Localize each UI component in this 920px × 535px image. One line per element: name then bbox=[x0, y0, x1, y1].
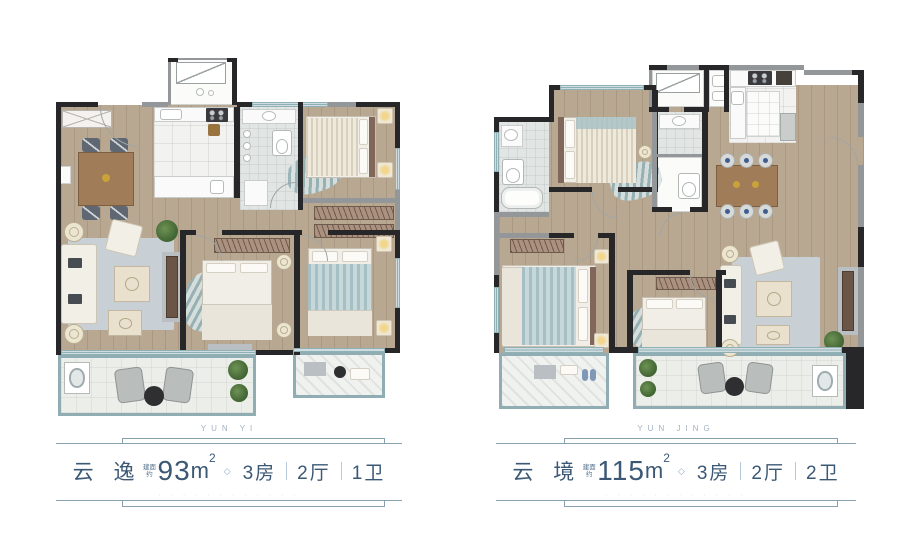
unit-label-yunjing: YUN JING 云 境 建面约 115 m2 ◇ 3房 2厅 2卫 · · ·… bbox=[496, 424, 856, 506]
pillow bbox=[565, 151, 575, 179]
side-table bbox=[64, 324, 84, 344]
wall bbox=[690, 207, 708, 212]
wall bbox=[729, 65, 804, 70]
wall bbox=[858, 227, 864, 267]
unit-name: 云 逸 bbox=[73, 456, 142, 486]
duvet-fold bbox=[202, 304, 272, 340]
wardrobe bbox=[314, 206, 394, 220]
slipper bbox=[582, 369, 588, 381]
utility-fixture bbox=[196, 88, 204, 96]
wall bbox=[667, 65, 699, 70]
dining-chair bbox=[739, 204, 754, 219]
stove bbox=[748, 71, 772, 85]
kitchen-sink bbox=[731, 91, 744, 105]
wall bbox=[549, 90, 554, 122]
balcony-chair bbox=[114, 366, 146, 404]
nightstand-lamp bbox=[377, 108, 393, 124]
wall bbox=[328, 102, 356, 107]
unit-label-yunyi: YUN YI 云 逸 建面约 93 m2 ◇ 3房 2厅 1卫 · · · · … bbox=[56, 424, 402, 506]
wall bbox=[168, 58, 178, 62]
dining-chair bbox=[758, 153, 773, 168]
nightstand-lamp bbox=[594, 249, 609, 264]
dining-chair bbox=[82, 206, 100, 220]
wall bbox=[704, 70, 709, 112]
side-table bbox=[276, 254, 292, 270]
sofa-throw bbox=[68, 258, 82, 268]
separator bbox=[795, 462, 796, 480]
bench bbox=[304, 362, 326, 376]
bench bbox=[756, 325, 790, 345]
fridge bbox=[780, 113, 796, 141]
fine-print: · · · · · · · · · · · · bbox=[56, 492, 402, 499]
bath-shelf bbox=[243, 154, 251, 162]
decor-line-bottom bbox=[56, 499, 402, 506]
floorplan-yunyi bbox=[56, 58, 402, 418]
sofa bbox=[61, 244, 97, 324]
dining-chair bbox=[720, 153, 735, 168]
wall bbox=[168, 58, 171, 105]
pillow bbox=[206, 263, 236, 273]
bathtub bbox=[501, 187, 543, 209]
spec-baths: 2卫 bbox=[806, 458, 840, 485]
wall bbox=[609, 347, 633, 353]
kitchen-sink bbox=[210, 180, 224, 194]
wall bbox=[494, 117, 499, 132]
bath-shelf bbox=[243, 130, 251, 138]
headboard bbox=[558, 117, 564, 183]
diamond-icon: ◇ bbox=[678, 466, 685, 477]
wall bbox=[142, 102, 168, 107]
dining-chair bbox=[110, 206, 128, 220]
spec-halls: 2厅 bbox=[297, 458, 331, 485]
separator bbox=[286, 462, 287, 480]
spec-halls: 2厅 bbox=[751, 458, 785, 485]
bath-shelf bbox=[243, 142, 251, 150]
plant bbox=[156, 220, 178, 242]
pillow bbox=[359, 119, 368, 145]
wall bbox=[494, 172, 499, 217]
wall bbox=[494, 212, 549, 217]
unit-pinyin: YUN YI bbox=[56, 424, 402, 433]
floorplan-yunjing bbox=[494, 57, 872, 421]
wall bbox=[846, 353, 864, 409]
utility-fixture bbox=[208, 90, 214, 96]
wall bbox=[657, 154, 702, 157]
unit-pinyin: YUN JING bbox=[496, 424, 856, 433]
wall bbox=[494, 275, 499, 287]
area-unit: m2 bbox=[191, 458, 216, 484]
toilet bbox=[502, 159, 524, 185]
coffee-table bbox=[114, 266, 150, 302]
washing-machine bbox=[812, 365, 838, 397]
wall bbox=[222, 230, 298, 235]
sofa bbox=[720, 265, 742, 345]
plant bbox=[228, 360, 248, 380]
wall bbox=[652, 112, 657, 212]
window bbox=[252, 102, 328, 107]
bath-sink bbox=[672, 116, 686, 126]
wall bbox=[180, 235, 186, 355]
nightstand-lamp bbox=[594, 333, 609, 348]
sofa-throw bbox=[724, 315, 736, 324]
window bbox=[494, 287, 499, 333]
spec-baths: 1卫 bbox=[352, 458, 386, 485]
wall bbox=[232, 58, 237, 105]
pillow bbox=[342, 251, 368, 262]
bench bbox=[534, 365, 556, 379]
area-value: 115 bbox=[597, 455, 645, 487]
bath-sink bbox=[262, 111, 276, 121]
pillow bbox=[240, 263, 268, 273]
diamond-icon: ◇ bbox=[224, 466, 231, 477]
pouf bbox=[638, 145, 652, 159]
window bbox=[638, 347, 842, 353]
balcony-table bbox=[144, 386, 164, 406]
window bbox=[494, 132, 499, 172]
superscript-2: 2 bbox=[209, 451, 216, 465]
area-note: 建面约 bbox=[143, 464, 157, 478]
wall bbox=[627, 270, 690, 275]
wall bbox=[609, 238, 615, 353]
balcony-table bbox=[725, 377, 744, 396]
appliance bbox=[776, 71, 792, 85]
plant bbox=[640, 381, 656, 397]
wall bbox=[234, 107, 240, 198]
towel bbox=[560, 365, 578, 375]
wall bbox=[652, 207, 672, 212]
separator bbox=[740, 462, 741, 480]
window bbox=[293, 348, 385, 352]
area-value: 93 bbox=[158, 455, 191, 487]
wall bbox=[858, 103, 864, 137]
balcony-chair bbox=[744, 361, 774, 394]
table-decor bbox=[733, 181, 740, 188]
window bbox=[560, 85, 644, 90]
wall bbox=[395, 102, 400, 148]
exterior bbox=[494, 85, 549, 117]
pillow bbox=[646, 299, 673, 309]
balcony-chair bbox=[697, 361, 727, 394]
flower-pot bbox=[334, 366, 346, 378]
wall bbox=[494, 217, 499, 275]
pillow bbox=[578, 269, 588, 303]
duvet bbox=[308, 264, 372, 310]
side-table bbox=[276, 322, 292, 338]
unit-name: 云 境 bbox=[512, 456, 581, 486]
nightstand-lamp bbox=[377, 162, 393, 178]
wall bbox=[294, 235, 300, 355]
decor-line-top bbox=[496, 438, 856, 445]
white-fold bbox=[502, 267, 522, 345]
decor-line-bottom bbox=[496, 499, 856, 506]
wall bbox=[494, 333, 499, 353]
wardrobe bbox=[510, 239, 564, 253]
wall bbox=[702, 112, 708, 212]
toilet bbox=[272, 130, 292, 156]
ottoman bbox=[108, 310, 142, 336]
floorplan-poster: YUN YI 云 逸 建面约 93 m2 ◇ 3房 2厅 1卫 · · · · … bbox=[0, 0, 920, 535]
wall bbox=[804, 70, 858, 75]
toilet bbox=[678, 173, 700, 199]
sofa-throw bbox=[68, 294, 82, 304]
wall bbox=[328, 230, 400, 235]
wall bbox=[356, 102, 400, 107]
plant bbox=[639, 359, 657, 377]
table-decor bbox=[102, 174, 110, 182]
sofa-throw bbox=[724, 279, 736, 288]
wall bbox=[633, 347, 638, 353]
wall bbox=[298, 102, 303, 210]
washing-machine bbox=[64, 362, 90, 394]
dining-chair bbox=[720, 204, 735, 219]
dining-chair bbox=[82, 138, 100, 152]
wall bbox=[227, 58, 237, 62]
tv-console bbox=[842, 271, 854, 331]
wall bbox=[716, 275, 722, 353]
nightstand-lamp bbox=[376, 320, 392, 336]
shower bbox=[244, 180, 268, 206]
wall bbox=[395, 308, 400, 353]
wall bbox=[256, 350, 293, 355]
wall bbox=[858, 165, 864, 227]
table-decor bbox=[752, 181, 759, 188]
window bbox=[504, 347, 604, 353]
teal-throw bbox=[576, 117, 636, 129]
spec-rooms: 3房 bbox=[697, 458, 731, 485]
wall bbox=[385, 348, 400, 353]
wall bbox=[56, 102, 98, 107]
unit-title: 云 境 建面约 115 m2 ◇ 3房 2厅 2卫 bbox=[496, 454, 856, 488]
pillow bbox=[578, 307, 588, 341]
pillow bbox=[676, 299, 703, 309]
wall bbox=[56, 102, 61, 355]
wall bbox=[303, 198, 395, 203]
duvet bbox=[306, 118, 358, 176]
coffee-table bbox=[756, 281, 792, 317]
decor-line-top bbox=[56, 438, 402, 445]
unit-title: 云 逸 建面约 93 m2 ◇ 3房 2厅 1卫 bbox=[56, 454, 402, 488]
dining-chair bbox=[758, 204, 773, 219]
balcony-small bbox=[499, 353, 609, 409]
kitchen-island bbox=[746, 91, 780, 137]
fine-print: · · · · · · · · · · · · bbox=[496, 492, 856, 499]
area-note: 建面约 bbox=[582, 464, 596, 478]
duvet-fold bbox=[308, 310, 372, 336]
wall bbox=[858, 267, 864, 357]
spec-rooms: 3房 bbox=[243, 458, 277, 485]
dining-table bbox=[716, 165, 778, 207]
nightstand-lamp bbox=[376, 236, 392, 252]
window bbox=[61, 350, 256, 355]
wall bbox=[549, 187, 592, 192]
wall bbox=[499, 233, 549, 238]
kitchen-sink bbox=[160, 109, 182, 120]
pillow bbox=[565, 120, 575, 148]
balcony-chair bbox=[162, 366, 194, 404]
side-table bbox=[64, 222, 84, 242]
towel bbox=[350, 368, 370, 380]
stove bbox=[206, 108, 228, 122]
drying-rack bbox=[176, 62, 226, 84]
dining-chair bbox=[739, 153, 754, 168]
wall bbox=[549, 233, 574, 238]
headboard bbox=[369, 117, 375, 177]
window bbox=[395, 258, 400, 308]
area-unit: m2 bbox=[645, 458, 670, 484]
grocery-bag bbox=[208, 124, 220, 136]
wall bbox=[395, 190, 400, 230]
plant bbox=[230, 384, 248, 402]
wardrobe bbox=[214, 238, 290, 253]
wall bbox=[494, 117, 549, 122]
superscript-2: 2 bbox=[663, 451, 670, 465]
wall bbox=[627, 275, 633, 353]
wall bbox=[858, 70, 864, 103]
pillow bbox=[359, 148, 368, 174]
side-table bbox=[721, 245, 739, 263]
wall bbox=[724, 70, 729, 112]
drying-rack bbox=[656, 73, 700, 93]
separator bbox=[341, 462, 342, 480]
bath-sink bbox=[504, 129, 518, 141]
window bbox=[395, 148, 400, 190]
duvet bbox=[522, 267, 576, 345]
slipper bbox=[590, 369, 596, 381]
tv-console bbox=[166, 256, 178, 318]
